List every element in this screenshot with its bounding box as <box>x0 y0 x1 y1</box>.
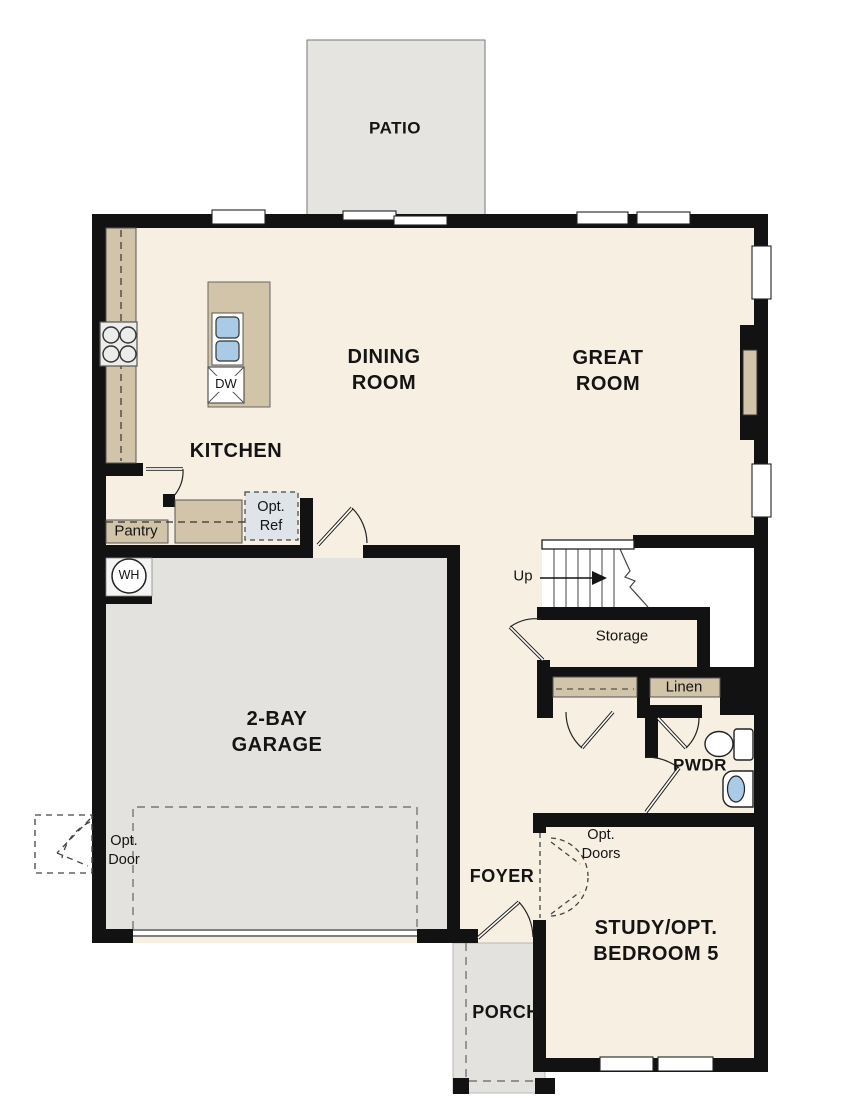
garage-door <box>133 929 417 937</box>
window <box>600 1057 653 1071</box>
window <box>752 464 771 517</box>
pantry-label: Pantry <box>114 523 157 542</box>
cooktop-icon <box>100 322 137 366</box>
patio-slider-panel <box>343 211 396 220</box>
linen-label: Linen <box>666 679 703 698</box>
storage-label: Storage <box>596 628 649 647</box>
window <box>212 210 265 224</box>
coat-closet-shelf <box>553 677 637 697</box>
study-label: STUDY/OPT. BEDROOM 5 <box>593 915 719 967</box>
window <box>637 212 690 224</box>
floor-plan: PATIO DINING ROOM GREAT ROOM KITCHEN Pan… <box>0 0 868 1111</box>
stair-landing <box>542 540 634 549</box>
window <box>658 1057 713 1071</box>
kitchen-sink-icon <box>212 313 243 365</box>
patio-label: PATIO <box>369 117 421 138</box>
porch-label: PORCH <box>472 1001 540 1024</box>
opt-ref-label: Opt. Ref <box>257 498 284 536</box>
opt-door-swing <box>35 815 92 873</box>
up-label: Up <box>513 568 532 587</box>
window <box>752 246 771 299</box>
vanity-sink-icon <box>723 771 753 807</box>
opt-doors-label: Opt. Doors <box>582 826 621 864</box>
patio-slider-panel <box>394 216 447 225</box>
opt-door-label: Opt. Door <box>108 832 139 870</box>
fireplace-icon <box>743 350 757 415</box>
water-heater-label: WH <box>119 568 140 584</box>
window <box>577 212 628 224</box>
great-room-label: GREAT ROOM <box>572 345 643 397</box>
foyer-label: FOYER <box>470 865 535 888</box>
garage-label: 2-BAY GARAGE <box>232 706 323 758</box>
kitchen-label: KITCHEN <box>190 438 282 464</box>
powder-label: PWDR <box>673 754 727 775</box>
dishwasher-label: DW <box>213 376 239 392</box>
floor-plan-drawing <box>0 0 868 1111</box>
dining-room-label: DINING ROOM <box>348 344 421 396</box>
